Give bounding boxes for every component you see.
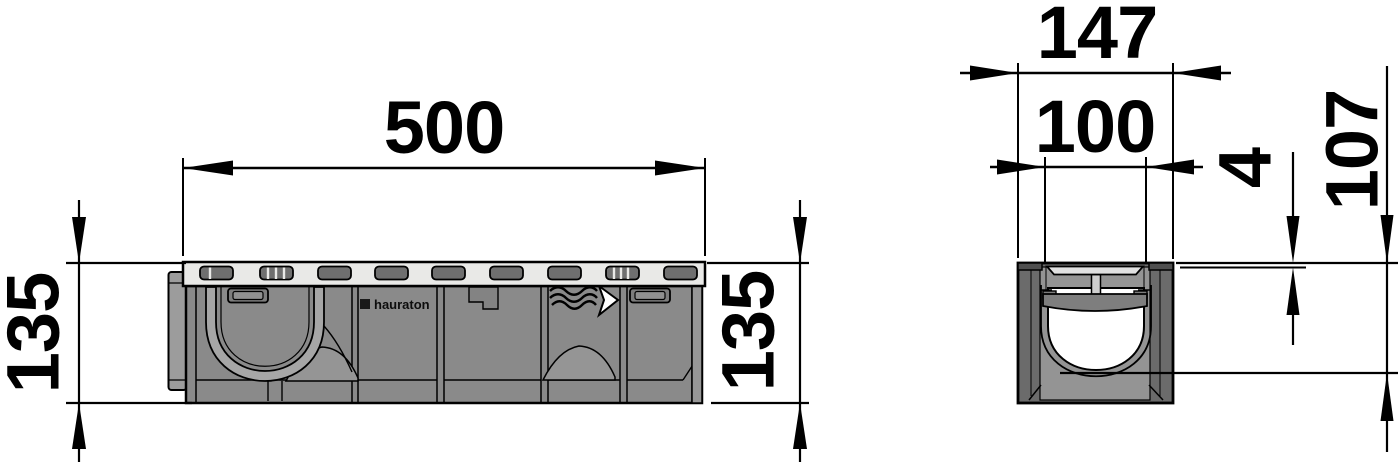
technical-drawing-page: hauraton <box>0 0 1400 472</box>
cross-section-view: 147 100 4 107 <box>960 0 1398 452</box>
grating-side <box>183 262 705 286</box>
dim-147-arrow-right <box>1173 66 1221 81</box>
dim-135-right-arrow-bottom <box>793 403 807 449</box>
grate-plate <box>1047 267 1143 275</box>
dim-107-arrow-top <box>1381 215 1394 263</box>
grate-stem <box>1092 275 1101 296</box>
drawing-canvas: hauraton <box>0 0 1400 472</box>
locking-clamp-right <box>630 289 670 303</box>
dim-135-right: 135 <box>707 200 810 462</box>
hauraton-logo-icon <box>360 299 370 309</box>
dim-135-left: 135 <box>0 200 192 462</box>
dim-135-left-label: 135 <box>0 273 75 393</box>
dim-4-label: 4 <box>1204 147 1287 188</box>
dim-107: 107 <box>1311 66 1394 452</box>
dim-100: 100 <box>990 85 1203 262</box>
dim-135-right-label: 135 <box>707 271 790 391</box>
dim-500: 500 <box>183 86 705 256</box>
edge-rail-left <box>1018 263 1042 270</box>
dim-100-label: 100 <box>1035 85 1155 168</box>
dim-135-right-arrow-top <box>793 217 807 263</box>
dim-500-arrow-left <box>183 161 233 176</box>
dim-107-label: 107 <box>1311 90 1394 210</box>
channel-end-right <box>692 286 702 403</box>
grating-slots <box>200 267 697 280</box>
dim-135-left-arrow-bottom <box>72 403 86 449</box>
dim-135-left-arrow-top <box>72 217 86 263</box>
dim-500-label: 500 <box>384 86 504 169</box>
locking-clamp-left <box>228 289 268 303</box>
dim-147-label: 147 <box>1037 0 1157 74</box>
channel-end-connector <box>169 272 187 390</box>
edge-rail-right <box>1149 263 1173 270</box>
dim-4-arrow-top <box>1287 216 1300 263</box>
hauraton-logo-text: hauraton <box>374 297 430 312</box>
dim-4-arrow-bottom <box>1287 268 1300 316</box>
side-view: hauraton <box>0 86 809 462</box>
dim-107-arrow-bottom <box>1381 373 1394 421</box>
lock-bar <box>1043 291 1147 311</box>
dim-500-arrow-right <box>655 161 705 176</box>
dim-147-arrow-left <box>970 66 1018 81</box>
dim-4: 4 <box>1204 147 1300 345</box>
channel-body-side: hauraton <box>186 286 702 403</box>
